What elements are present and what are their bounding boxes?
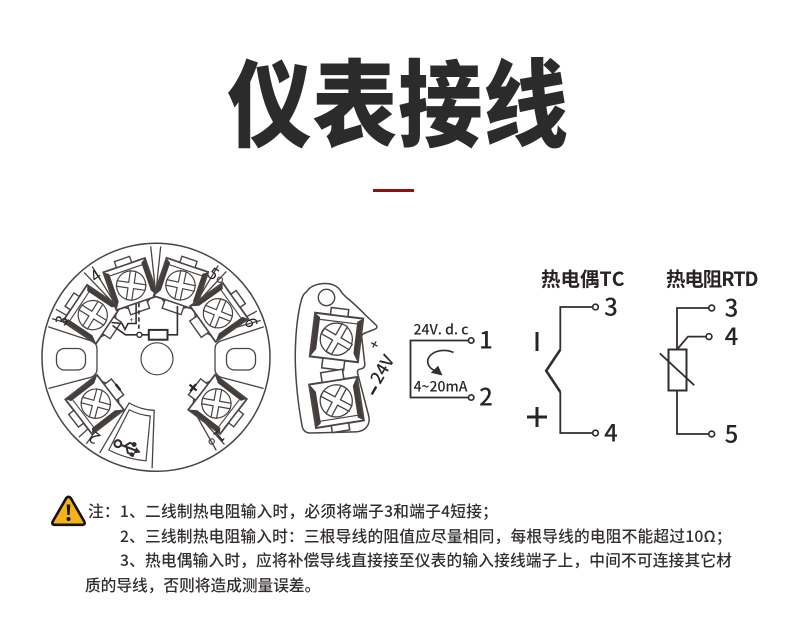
svg-text:4: 4 xyxy=(725,317,739,352)
svg-text:3: 3 xyxy=(604,288,618,323)
svg-text:4: 4 xyxy=(84,263,106,288)
svg-text:4: 4 xyxy=(604,414,618,449)
svg-text:+: + xyxy=(364,336,385,353)
svg-text:1: 1 xyxy=(479,321,493,356)
svg-text:24V. d. c: 24V. d. c xyxy=(414,320,469,340)
svg-text:1: 1 xyxy=(209,425,231,449)
svg-text:24V: 24V xyxy=(363,349,400,388)
svg-text:4~20mA: 4~20mA xyxy=(414,377,468,397)
svg-text:5: 5 xyxy=(725,415,739,450)
svg-text:2: 2 xyxy=(479,378,493,413)
svg-text:+: + xyxy=(130,316,134,326)
